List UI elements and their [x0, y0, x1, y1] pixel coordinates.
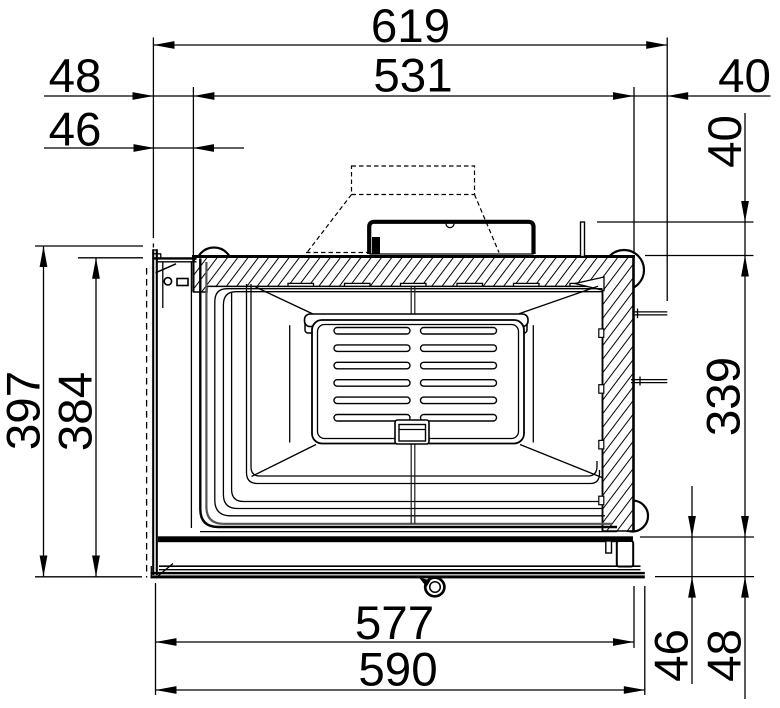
svg-text:384: 384: [50, 372, 103, 451]
svg-text:339: 339: [698, 357, 751, 436]
svg-text:48: 48: [699, 629, 752, 682]
svg-text:46: 46: [646, 629, 699, 682]
svg-text:590: 590: [358, 644, 437, 697]
svg-text:40: 40: [699, 115, 752, 168]
svg-text:48: 48: [49, 50, 102, 103]
svg-text:577: 577: [355, 597, 434, 650]
svg-text:46: 46: [49, 104, 102, 157]
svg-text:397: 397: [0, 371, 51, 450]
svg-text:619: 619: [371, 0, 450, 53]
svg-text:40: 40: [718, 50, 771, 103]
svg-text:531: 531: [373, 50, 452, 103]
